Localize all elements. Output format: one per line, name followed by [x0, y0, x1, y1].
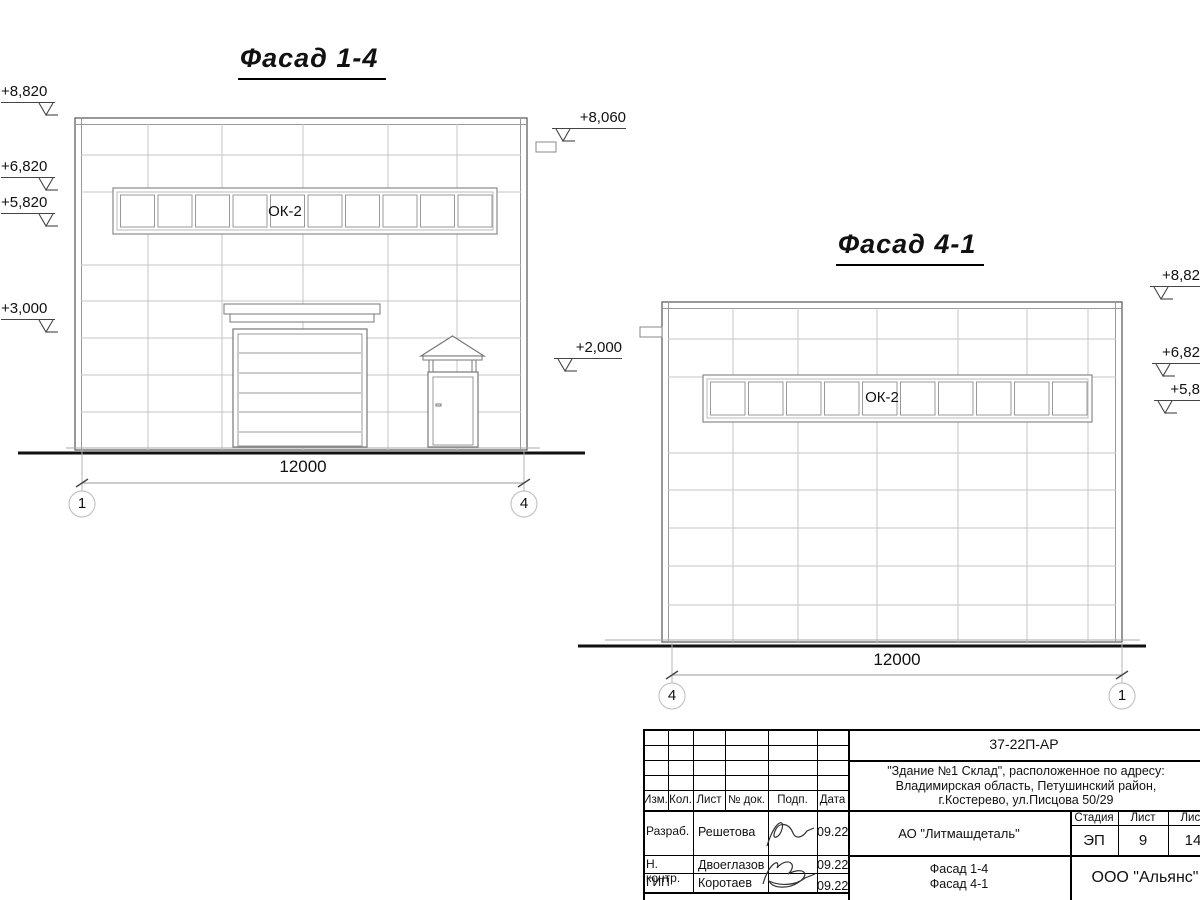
- elevation-arrow-icon: [37, 213, 59, 229]
- col-header-kol: Кол.: [668, 794, 693, 807]
- sheet-header: Лист: [1118, 812, 1168, 825]
- title-block-divider: [848, 855, 1200, 857]
- elevation-arrow-icon: [556, 358, 578, 374]
- address-line: "Здание №1 Склад", расположенное по адре…: [852, 764, 1200, 779]
- address-line: Владимирская область, Петушинский район,: [852, 779, 1200, 794]
- elevation-mark-8820: +8,820: [1, 84, 55, 103]
- title-block-border: [643, 729, 645, 900]
- col-header-izm: Изм.: [643, 794, 668, 807]
- elevation-arrow-icon: [37, 319, 59, 335]
- title-block: 37-22П-АР "Здание №1 Склад", расположенн…: [643, 729, 1200, 900]
- facade-4-1-title: Фасад 4-1: [836, 229, 984, 266]
- elevation-arrow-icon: [1156, 400, 1178, 416]
- elevation-label: +8,82: [1162, 267, 1200, 284]
- axis-bubble-4-left: 4: [511, 494, 537, 514]
- company-name: АО "Литмашдеталь": [848, 826, 1070, 841]
- drawing-title-line: Фасад 1-4: [848, 862, 1070, 877]
- row-date: 09.22: [817, 825, 848, 840]
- facade-1-4-title: Фасад 1-4: [238, 43, 386, 80]
- elevation-mark-58: +5,8: [1154, 382, 1200, 401]
- elevation-arrow-icon: [1152, 286, 1174, 302]
- doc-number: 37-22П-АР: [848, 736, 1200, 752]
- elevation-arrow-icon: [37, 177, 59, 193]
- col-header-data: Дата: [817, 794, 848, 807]
- title-block-divider: [848, 760, 1200, 762]
- sheet-value: 9: [1118, 832, 1168, 849]
- elevation-mark-682: +6,82: [1152, 345, 1200, 364]
- elevation-mark-2000: +2,000: [554, 340, 622, 359]
- stage-header: Стадия: [1070, 812, 1118, 825]
- project-address: "Здание №1 Склад", расположенное по адре…: [852, 764, 1200, 808]
- col-header-doc: № док.: [725, 794, 768, 807]
- elevation-label: +6,820: [1, 158, 47, 175]
- elevation-arrow-icon: [37, 102, 59, 118]
- elevation-label: +3,000: [1, 300, 47, 317]
- drawing-sheet: Фасад 1-4 Фасад 4-1 ОК-2 ОК-2 12000 1200…: [0, 0, 1200, 900]
- row-role: Разраб.: [646, 825, 693, 839]
- elevation-label: +2,000: [576, 339, 622, 356]
- elevation-label: +5,820: [1, 194, 47, 211]
- signature: [763, 814, 817, 854]
- sheets-value: 14: [1168, 832, 1200, 849]
- row-date: 09.22: [817, 858, 848, 873]
- window-band-label-1-4: ОК-2: [253, 203, 317, 220]
- stage-value: ЭП: [1070, 832, 1118, 849]
- window-band-label-4-1: ОК-2: [850, 389, 914, 406]
- axis-bubble-4-right: 4: [659, 686, 685, 706]
- row-name: Решетова: [698, 825, 768, 840]
- axis-bubble-1-left: 1: [69, 494, 95, 514]
- col-header-list: Лист: [693, 794, 725, 807]
- elevation-label: +6,82: [1162, 344, 1200, 361]
- row-role: ГИП: [646, 876, 693, 890]
- row-date: 09.22: [817, 879, 848, 894]
- dimension-1-4: 12000: [253, 457, 353, 477]
- drawing-title-line: Фасад 4-1: [848, 877, 1070, 892]
- dimension-4-1: 12000: [847, 650, 947, 670]
- elevation-mark-882: +8,82: [1150, 268, 1200, 287]
- address-line: г.Костерево, ул.Писцова 50/29: [852, 793, 1200, 808]
- elevation-label: +8,820: [1, 83, 47, 100]
- facade-4-1-linework: [578, 302, 1146, 709]
- elevation-arrow-icon: [554, 128, 576, 144]
- elevation-mark-5820: +5,820: [1, 195, 55, 214]
- elevation-label: +5,8: [1170, 381, 1200, 398]
- col-header-podp: Подп.: [768, 794, 817, 807]
- axis-bubble-1-right: 1: [1109, 686, 1135, 706]
- sheets-header: Лист: [1168, 812, 1200, 825]
- organization-name: ООО "Альянс": [1072, 869, 1200, 888]
- signature: [757, 856, 821, 892]
- title-block-border: [643, 729, 1200, 731]
- elevation-mark-8060: +8,060: [552, 110, 626, 129]
- drawing-title: Фасад 1-4 Фасад 4-1: [848, 862, 1070, 891]
- elevation-arrow-icon: [1154, 363, 1176, 379]
- elevation-mark-3000: +3,000: [1, 301, 55, 320]
- elevation-mark-6820: +6,820: [1, 159, 55, 178]
- elevation-label: +8,060: [580, 109, 626, 126]
